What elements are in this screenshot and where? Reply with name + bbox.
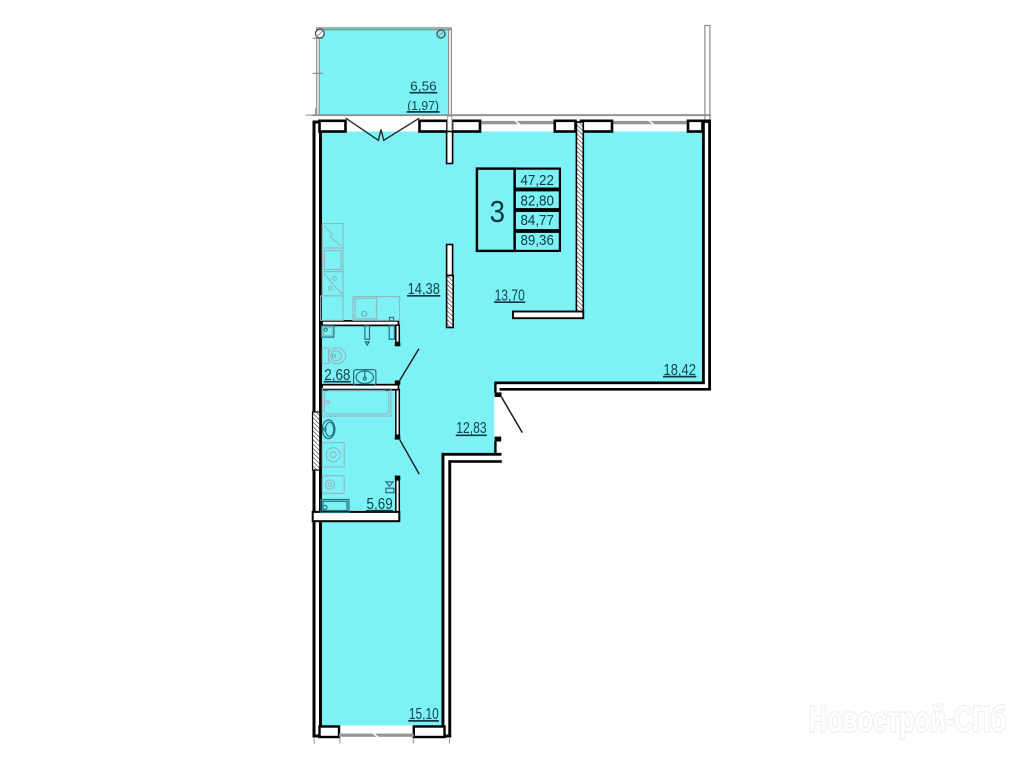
svg-text:47,22: 47,22	[521, 173, 554, 189]
svg-text:84,77: 84,77	[521, 213, 554, 229]
svg-text:89,36: 89,36	[521, 233, 554, 249]
svg-text:82,80: 82,80	[521, 193, 554, 209]
svg-text:Новострой-СПб: Новострой-СПб	[809, 699, 1006, 740]
svg-text:3: 3	[490, 195, 505, 229]
svg-text:(1,97): (1,97)	[407, 98, 439, 113]
svg-text:6,56: 6,56	[410, 79, 437, 94]
